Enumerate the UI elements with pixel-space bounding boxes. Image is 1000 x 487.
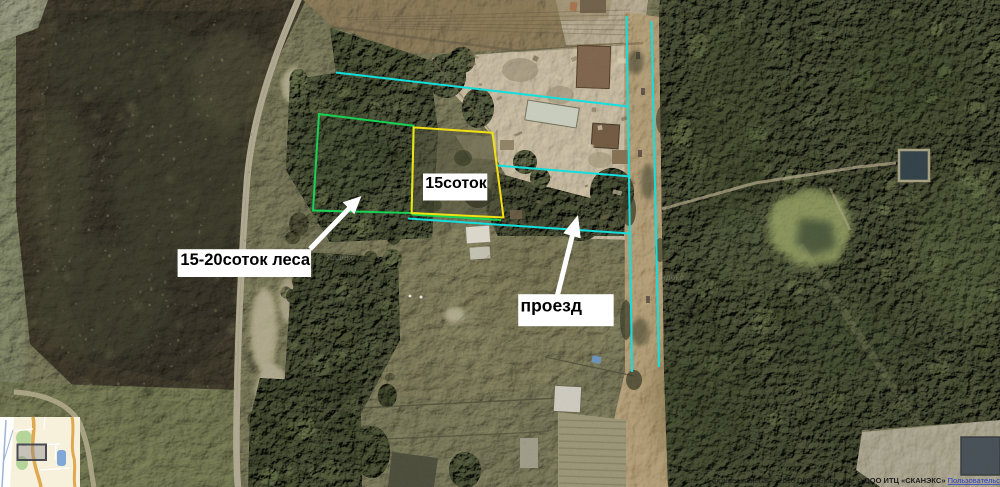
svg-text:Яндекс: Яндекс xyxy=(326,252,355,262)
svg-text:Includes material © 2010 Digit: Includes material © 2010 DigitalGlobe, I… xyxy=(712,476,1000,485)
svg-text:15соток: 15соток xyxy=(425,175,487,192)
svg-text:проезд: проезд xyxy=(521,295,583,315)
svg-text:15-20соток леса: 15-20соток леса xyxy=(180,251,310,269)
svg-text:Яндекс: Яндекс xyxy=(655,272,684,282)
